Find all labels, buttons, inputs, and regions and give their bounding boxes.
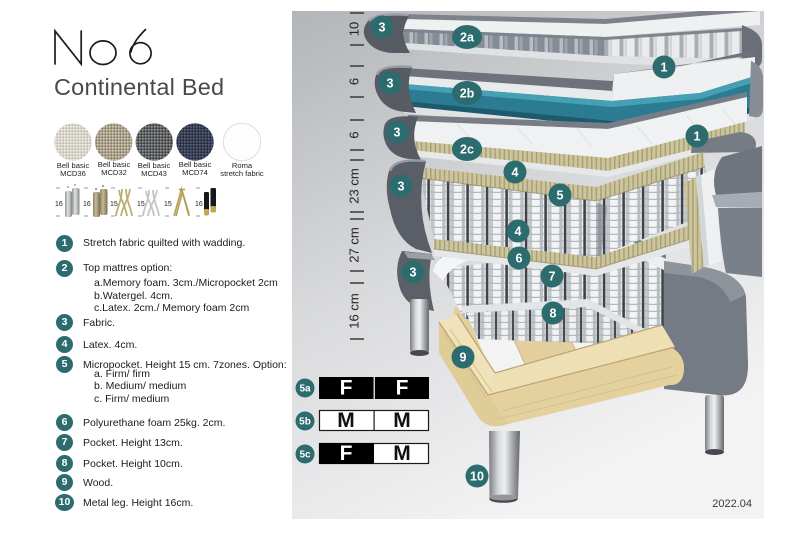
svg-text:23 cm: 23 cm — [347, 168, 362, 203]
svg-text:2c: 2c — [460, 143, 474, 157]
svg-text:M: M — [393, 409, 411, 432]
svg-text:1: 1 — [694, 130, 701, 144]
svg-text:2a: 2a — [460, 31, 475, 45]
svg-text:F: F — [396, 377, 409, 400]
svg-text:6: 6 — [516, 252, 523, 266]
svg-text:6: 6 — [347, 131, 362, 138]
svg-text:16: 16 — [195, 201, 203, 208]
svg-text:27 cm: 27 cm — [347, 227, 362, 262]
svg-text:6: 6 — [347, 78, 362, 85]
svg-text:2b: 2b — [460, 87, 475, 101]
svg-text:3: 3 — [394, 126, 401, 140]
svg-text:3: 3 — [379, 21, 386, 35]
svg-text:16: 16 — [55, 201, 63, 208]
svg-text:3: 3 — [410, 266, 417, 280]
svg-text:F: F — [340, 377, 353, 400]
svg-text:3: 3 — [398, 180, 405, 194]
svg-text:8: 8 — [550, 307, 557, 321]
svg-text:4: 4 — [512, 166, 519, 180]
svg-text:1: 1 — [661, 61, 668, 75]
svg-text:15: 15 — [137, 201, 145, 208]
svg-text:F: F — [340, 442, 353, 465]
svg-text:9: 9 — [460, 351, 467, 365]
svg-text:3: 3 — [387, 77, 394, 91]
svg-text:4: 4 — [515, 225, 522, 239]
svg-text:10: 10 — [347, 22, 362, 36]
svg-text:5: 5 — [557, 189, 564, 203]
svg-text:M: M — [337, 409, 355, 432]
svg-text:15: 15 — [164, 201, 172, 208]
svg-text:5c: 5c — [299, 450, 311, 461]
svg-text:2022.04: 2022.04 — [712, 498, 752, 510]
svg-text:10: 10 — [470, 470, 484, 484]
svg-text:7: 7 — [549, 270, 556, 284]
svg-text:16: 16 — [83, 201, 91, 208]
svg-text:15: 15 — [110, 201, 118, 208]
svg-text:M: M — [393, 442, 411, 465]
svg-text:16 cm: 16 cm — [347, 293, 362, 328]
svg-text:5b: 5b — [299, 417, 311, 428]
svg-text:5a: 5a — [299, 384, 311, 395]
